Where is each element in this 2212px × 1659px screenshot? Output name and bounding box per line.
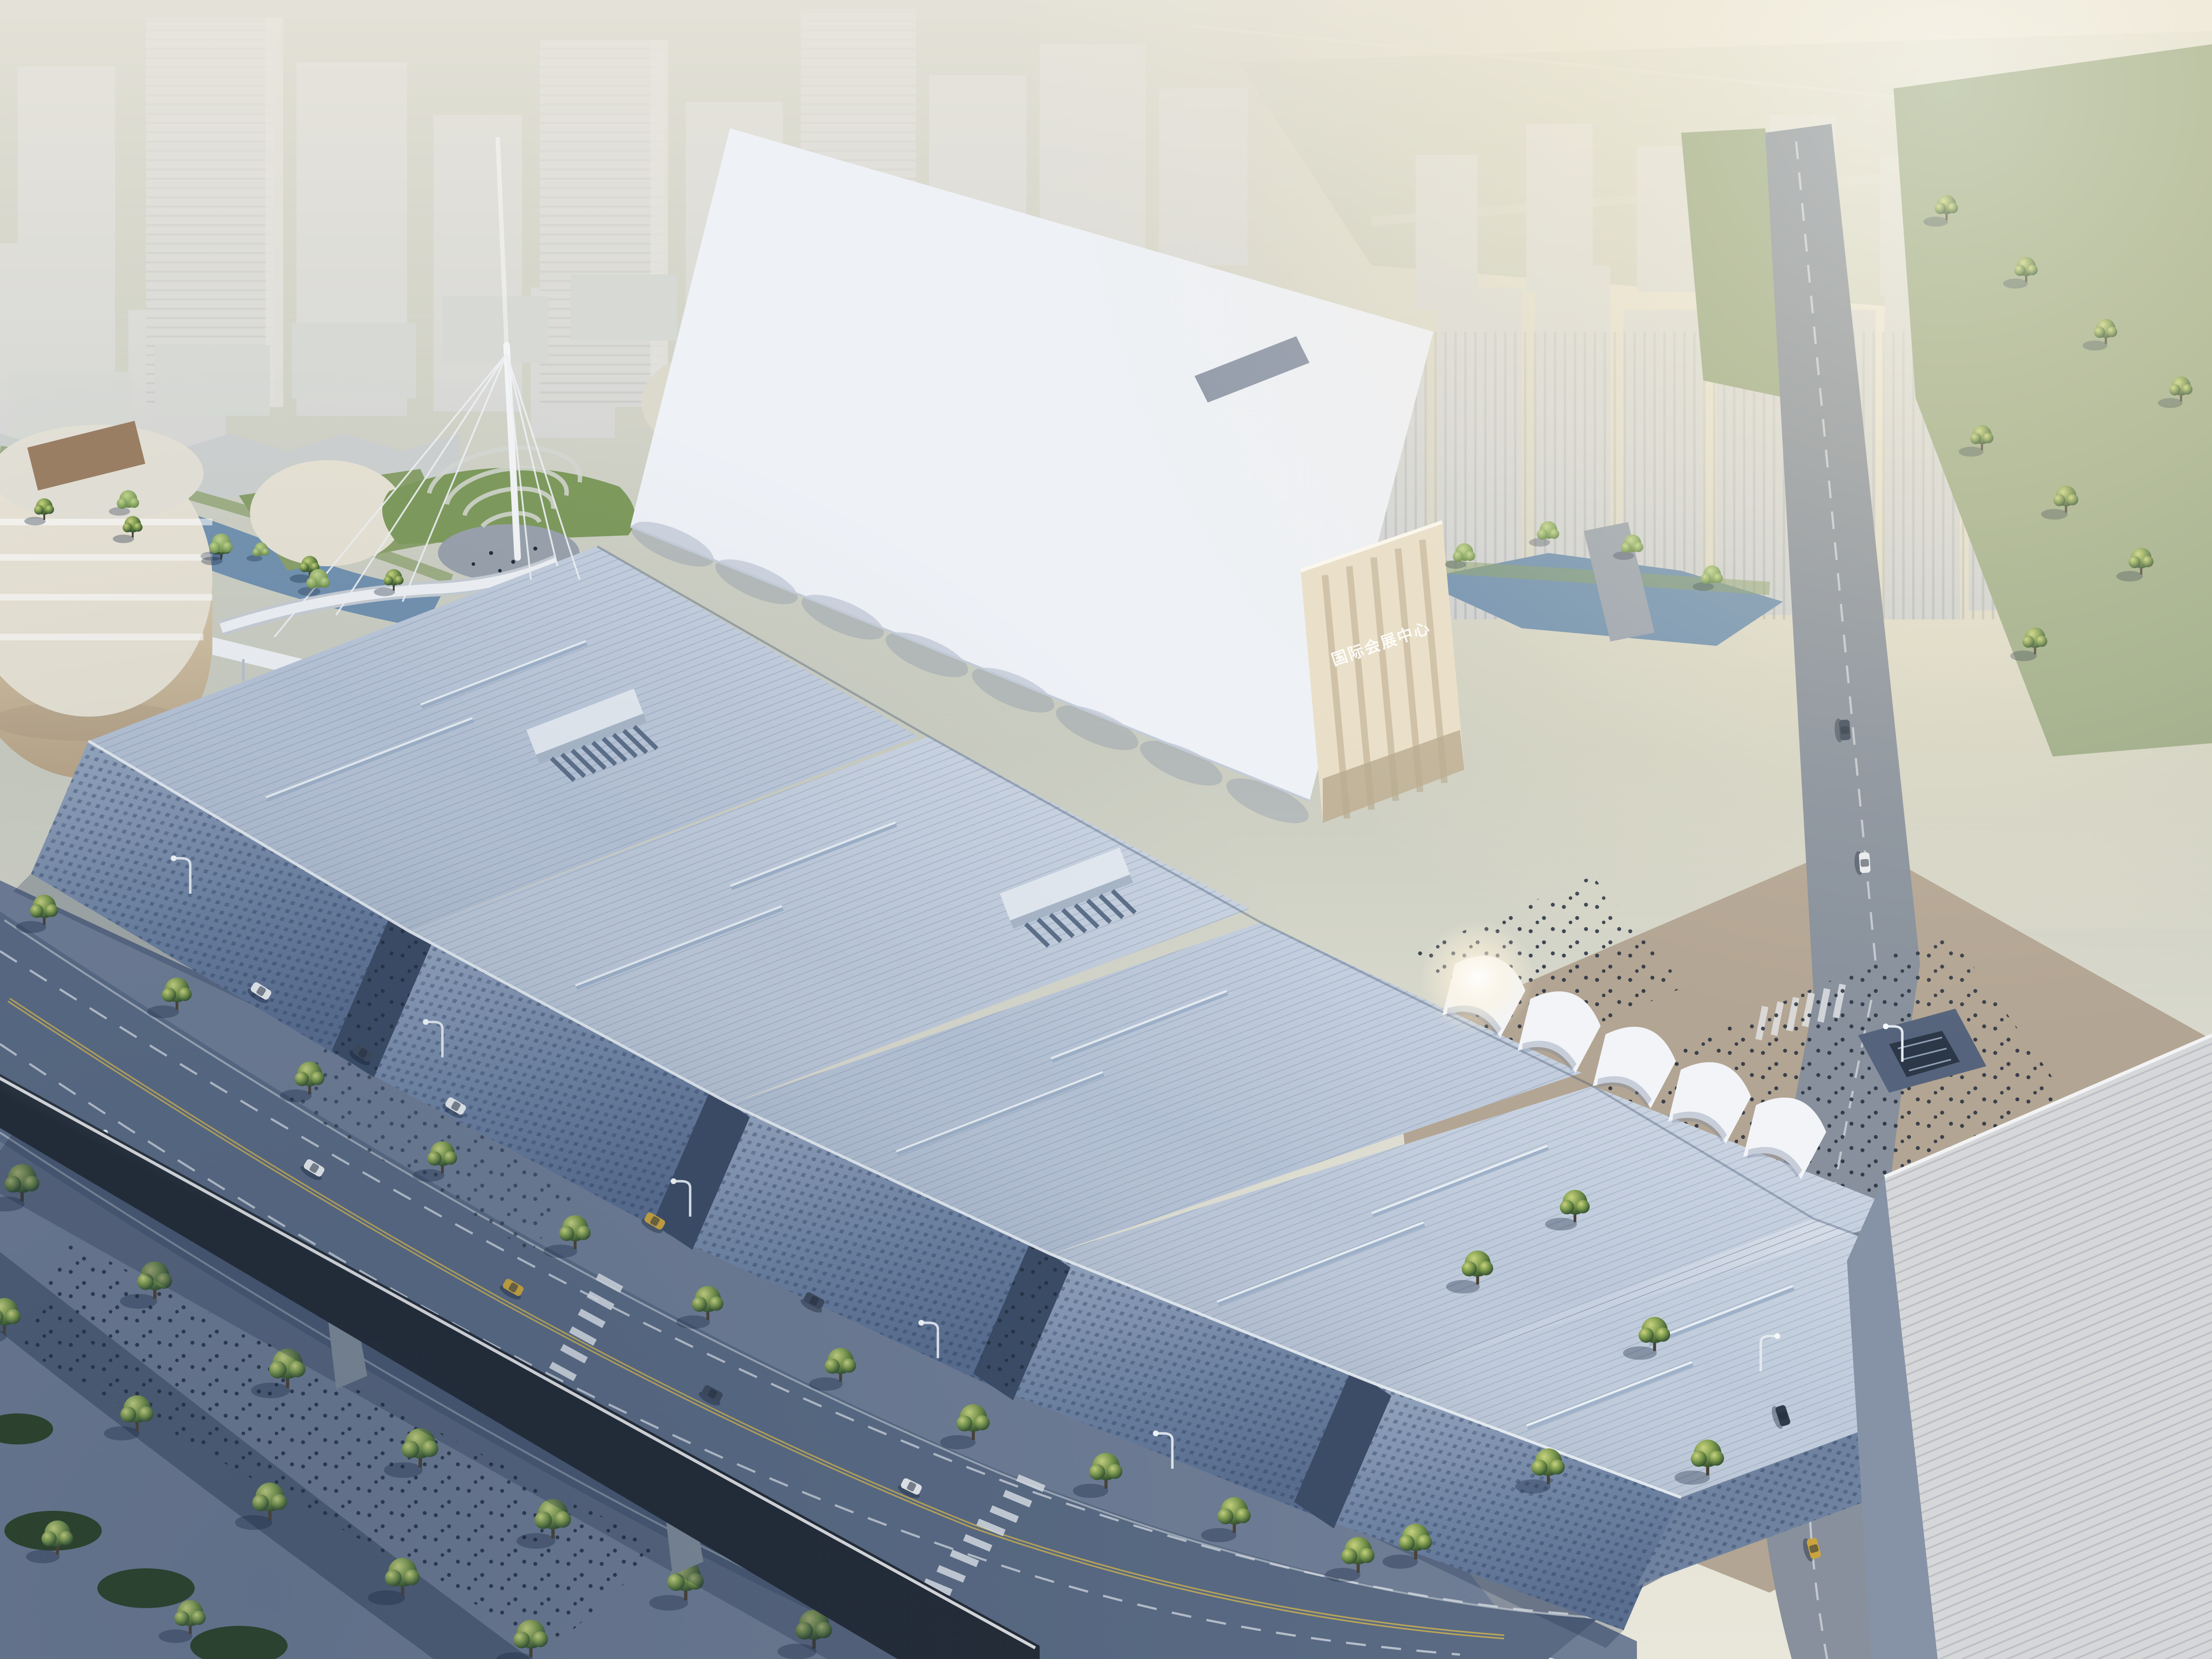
atmosphere-overlays — [0, 0, 2212, 1659]
scene-canvas: 国际会展中心 — [0, 0, 2212, 1659]
aerial-rendering: 国际会展中心 — [0, 0, 2212, 1659]
